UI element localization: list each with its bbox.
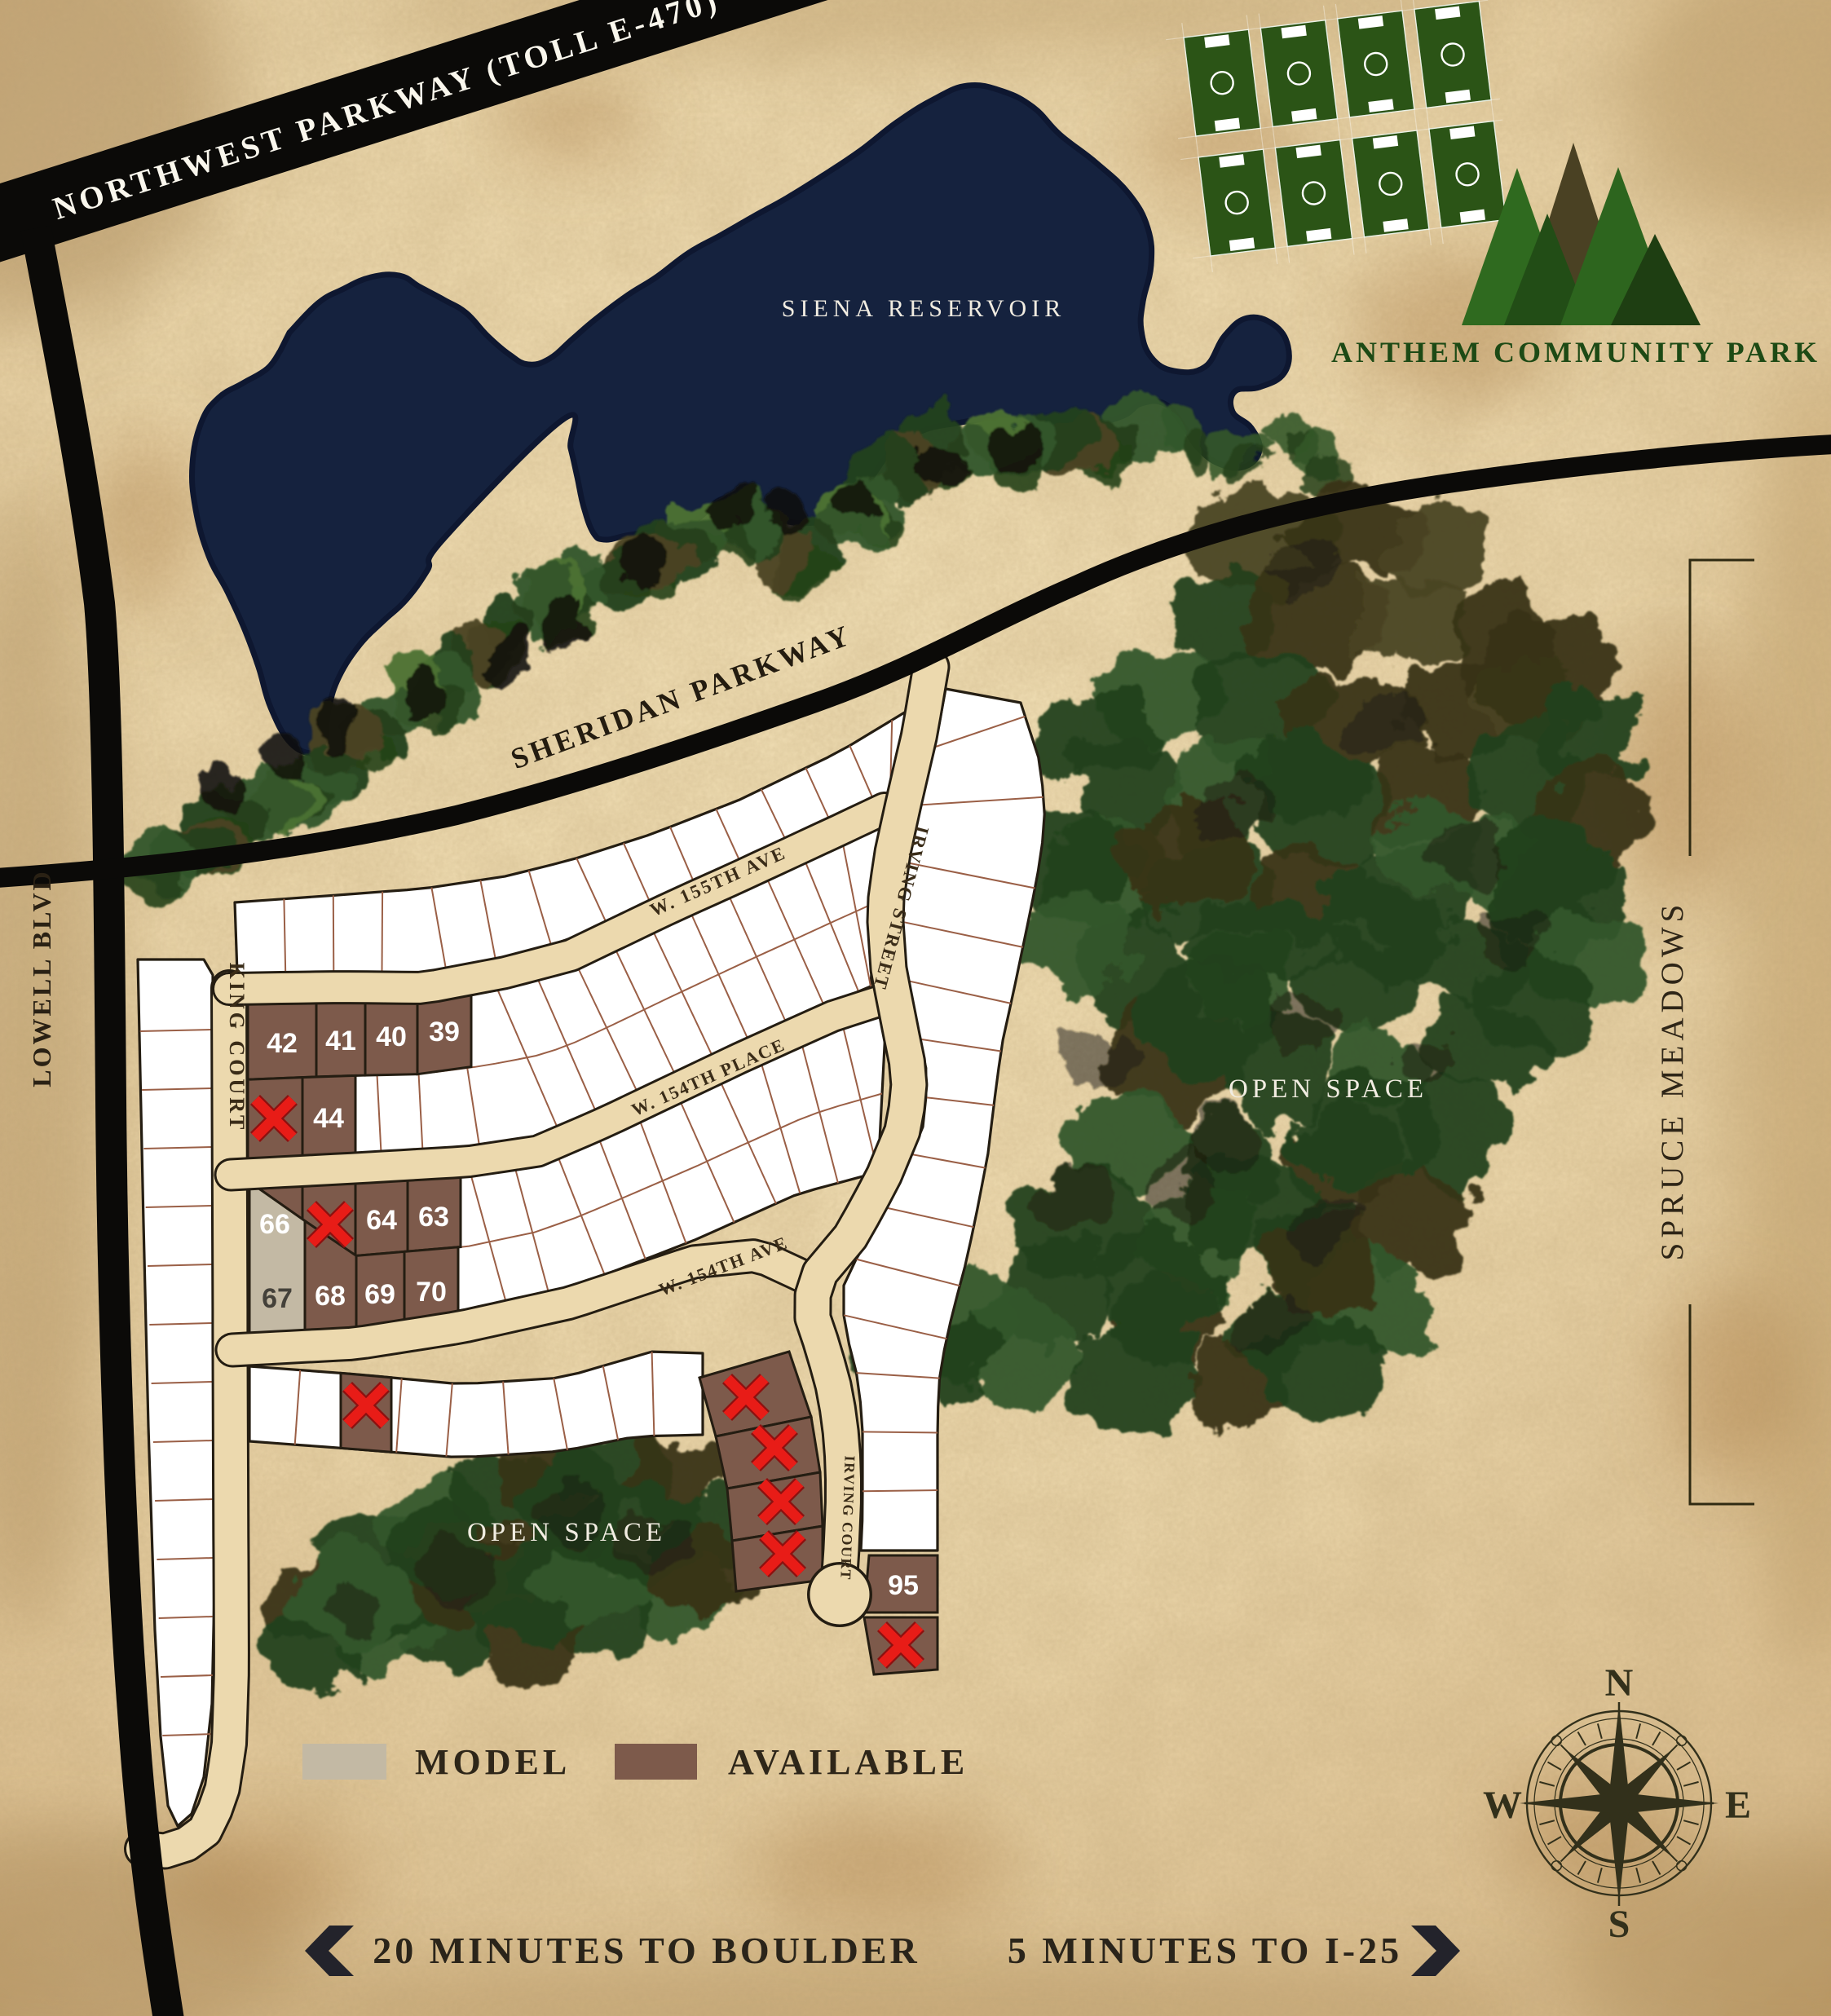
svg-text:SPRUCE MEADOWS: SPRUCE MEADOWS	[1655, 900, 1690, 1261]
svg-text:KING COURT: KING COURT	[225, 963, 249, 1133]
svg-text:44: 44	[313, 1103, 344, 1134]
svg-text:OPEN SPACE: OPEN SPACE	[1229, 1074, 1427, 1104]
svg-text:N: N	[1605, 1661, 1634, 1705]
svg-text:68: 68	[315, 1281, 346, 1312]
svg-text:70: 70	[416, 1277, 447, 1308]
svg-text:MODEL: MODEL	[415, 1742, 571, 1782]
svg-text:5 MINUTES TO I-25: 5 MINUTES TO I-25	[1008, 1930, 1402, 1971]
svg-text:OPEN SPACE: OPEN SPACE	[467, 1518, 666, 1547]
svg-text:20 MINUTES TO BOULDER: 20 MINUTES TO BOULDER	[373, 1930, 920, 1971]
svg-text:69: 69	[364, 1279, 395, 1310]
svg-text:S: S	[1608, 1903, 1630, 1946]
svg-text:LOWELL BLVD: LOWELL BLVD	[27, 869, 56, 1087]
svg-text:AVAILABLE: AVAILABLE	[728, 1742, 968, 1782]
svg-text:42: 42	[267, 1028, 298, 1059]
svg-text:66: 66	[259, 1209, 290, 1240]
svg-text:SIENA RESERVOIR: SIENA RESERVOIR	[782, 295, 1066, 322]
svg-text:64: 64	[366, 1205, 397, 1236]
svg-text:63: 63	[418, 1202, 449, 1233]
svg-text:W: W	[1483, 1784, 1522, 1827]
svg-text:67: 67	[262, 1283, 293, 1314]
svg-text:40: 40	[376, 1021, 407, 1052]
svg-text:41: 41	[325, 1026, 356, 1057]
svg-text:E: E	[1725, 1784, 1751, 1827]
svg-text:39: 39	[429, 1017, 460, 1048]
svg-text:95: 95	[888, 1570, 919, 1601]
svg-text:ANTHEM COMMUNITY PARK: ANTHEM COMMUNITY PARK	[1331, 336, 1820, 368]
